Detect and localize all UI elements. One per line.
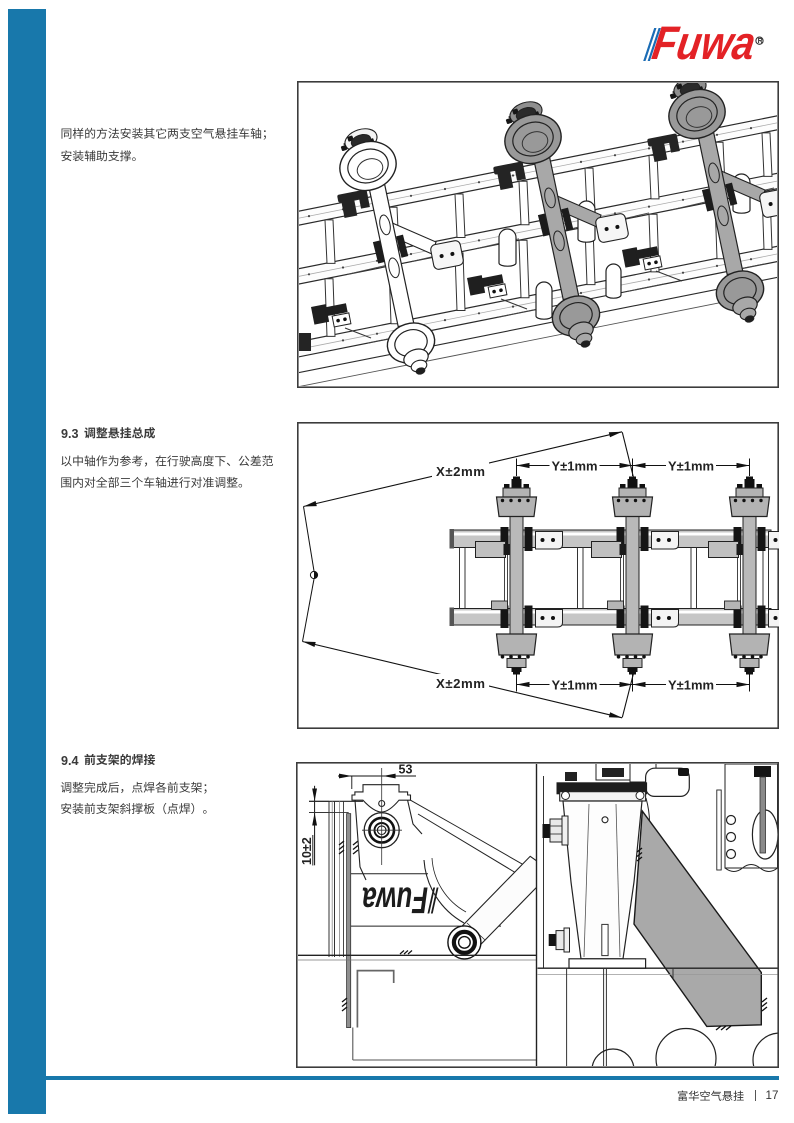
svg-text:X±2mm: X±2mm [436,676,485,691]
svg-text:Y±1mm: Y±1mm [551,458,597,473]
svg-text:X±2mm: X±2mm [436,464,485,479]
svg-text:Fuwa: Fuwa [362,880,428,921]
svg-text:Y±1mm: Y±1mm [551,677,597,692]
svg-text:10±2: 10±2 [300,837,314,865]
svg-text:53: 53 [399,763,413,777]
svg-text:Y±1mm: Y±1mm [668,458,714,473]
svg-text:Y±1mm: Y±1mm [668,677,714,692]
